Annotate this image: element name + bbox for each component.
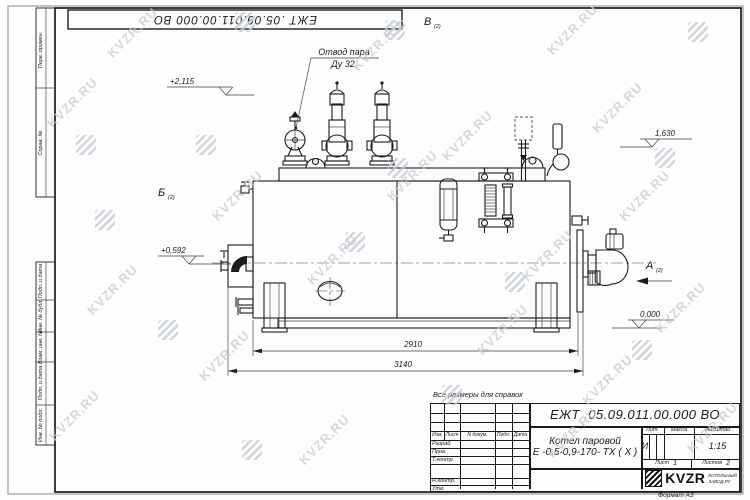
row-utv: Утв.: [432, 485, 460, 493]
drawing-sheet: ЕЖТ .05.09.011.00.000 ВО Перв. примен. С…: [0, 0, 750, 500]
strip-label: Справ. №: [38, 130, 44, 155]
sheet-num: 1: [673, 460, 677, 468]
section-marker-b: Б (2): [158, 187, 175, 201]
manhole: [315, 277, 345, 306]
strip-label: Инв. № подл.: [38, 408, 44, 442]
col-list: Лист: [444, 431, 460, 440]
svg-text:(2): (2): [656, 268, 663, 274]
level-column: [439, 179, 457, 241]
svg-text:0,000: 0,000: [640, 310, 661, 319]
product-name-line1: Котел паровой: [549, 436, 621, 447]
col-data: Дата: [512, 431, 529, 440]
product-name-line2: Е -0,5-0,9-170- ТХ ( Х ): [533, 447, 637, 458]
mass-label: Масса: [664, 426, 694, 434]
svg-text:(2): (2): [434, 24, 441, 30]
side-fitting: [572, 216, 588, 225]
brand-sub2: ЗАВОД.РУ: [708, 479, 736, 484]
side-strip-top: Перв. примен. Справ. №: [36, 8, 55, 197]
svg-text:А: А: [645, 260, 653, 272]
top-doc-number: ЕЖТ .05.09.011.00.000 ВО: [153, 13, 317, 25]
callout-line1: Отвод пара: [318, 47, 369, 57]
svg-text:3140: 3140: [394, 360, 412, 369]
title-block: Изм. Лист N докум. Подп. Дата Разраб. Пр…: [430, 403, 740, 492]
kvzr-logo-icon: [645, 470, 662, 487]
lifting-lug-left: [306, 159, 325, 169]
sheets-label: Листов: [702, 460, 722, 466]
strip-label: Инв. № дубл.: [38, 299, 44, 333]
svg-text:В: В: [424, 16, 431, 28]
base-skid: [278, 318, 570, 328]
drain-tap: [241, 182, 253, 193]
lit-value: И: [641, 434, 649, 459]
brand-name: KVZR: [665, 471, 705, 486]
svg-text:2910: 2910: [403, 340, 422, 349]
boiler-body: [253, 168, 570, 328]
col-ndoc: N докум.: [460, 431, 495, 440]
elevation-0592: +0,592: [158, 246, 231, 264]
support-front: [262, 283, 287, 332]
strip-label: Взам. инв. №: [38, 330, 44, 364]
reference-note: Все размеры для справок: [433, 390, 523, 399]
strip-label: Подп. и дата: [38, 264, 44, 298]
col-izm: Изм.: [431, 431, 444, 440]
safety-valve-2: [367, 81, 397, 165]
svg-text:1,630: 1,630: [655, 129, 676, 138]
lit-label: Лит.: [641, 426, 664, 434]
pressure-siphon: [547, 124, 569, 176]
water-level-gauge: [479, 168, 513, 233]
scale-value: 1:15: [694, 434, 741, 459]
row-prov: Пров.: [432, 448, 460, 456]
format-note: Формат А3: [658, 492, 694, 499]
callout-line2: Ду 32: [330, 59, 354, 69]
doc-number: ЕЖТ .05.09.011.00.000 ВО: [529, 404, 741, 426]
svg-text:Б: Б: [158, 187, 165, 199]
row-nkontr: Н.контр.: [432, 478, 460, 485]
strip-label: Подп. и дата: [38, 366, 44, 400]
feed-unit: [220, 245, 253, 315]
burner: [577, 229, 628, 312]
steam-valve: [283, 111, 307, 165]
strip-label: Перв. примен.: [38, 32, 44, 69]
elevation-0000: 0,000: [612, 310, 674, 328]
dimension-2910: 2910: [253, 313, 578, 356]
col-podp: Подп.: [495, 431, 512, 440]
safety-valve-1: [322, 81, 352, 165]
scale-label: Масштаб: [694, 426, 741, 434]
row-tkontr: Т.контр.: [432, 456, 460, 464]
level-probe: [515, 117, 532, 181]
support-rear: [534, 283, 559, 332]
elevation-2115: +2,115: [167, 77, 254, 95]
view-marker-b-top: В (2): [424, 16, 441, 30]
svg-text:+2,115: +2,115: [170, 77, 195, 86]
elevation-1630: 1,630: [620, 129, 692, 147]
view-marker-a: А (2): [636, 260, 672, 285]
row-razrab: Разраб.: [432, 440, 460, 448]
sheets-num: 2: [726, 460, 730, 468]
sheet-label: Лист: [655, 460, 669, 466]
svg-text:+0,592: +0,592: [161, 246, 186, 255]
svg-text:(2): (2): [168, 195, 175, 201]
company-logo: KVZR КОТЕЛЬНЫЙ ЗАВОД.РУ: [645, 470, 736, 487]
side-strip-bottom: Подп. и дата Инв. № дубл. Взам. инв. № П…: [36, 262, 55, 445]
